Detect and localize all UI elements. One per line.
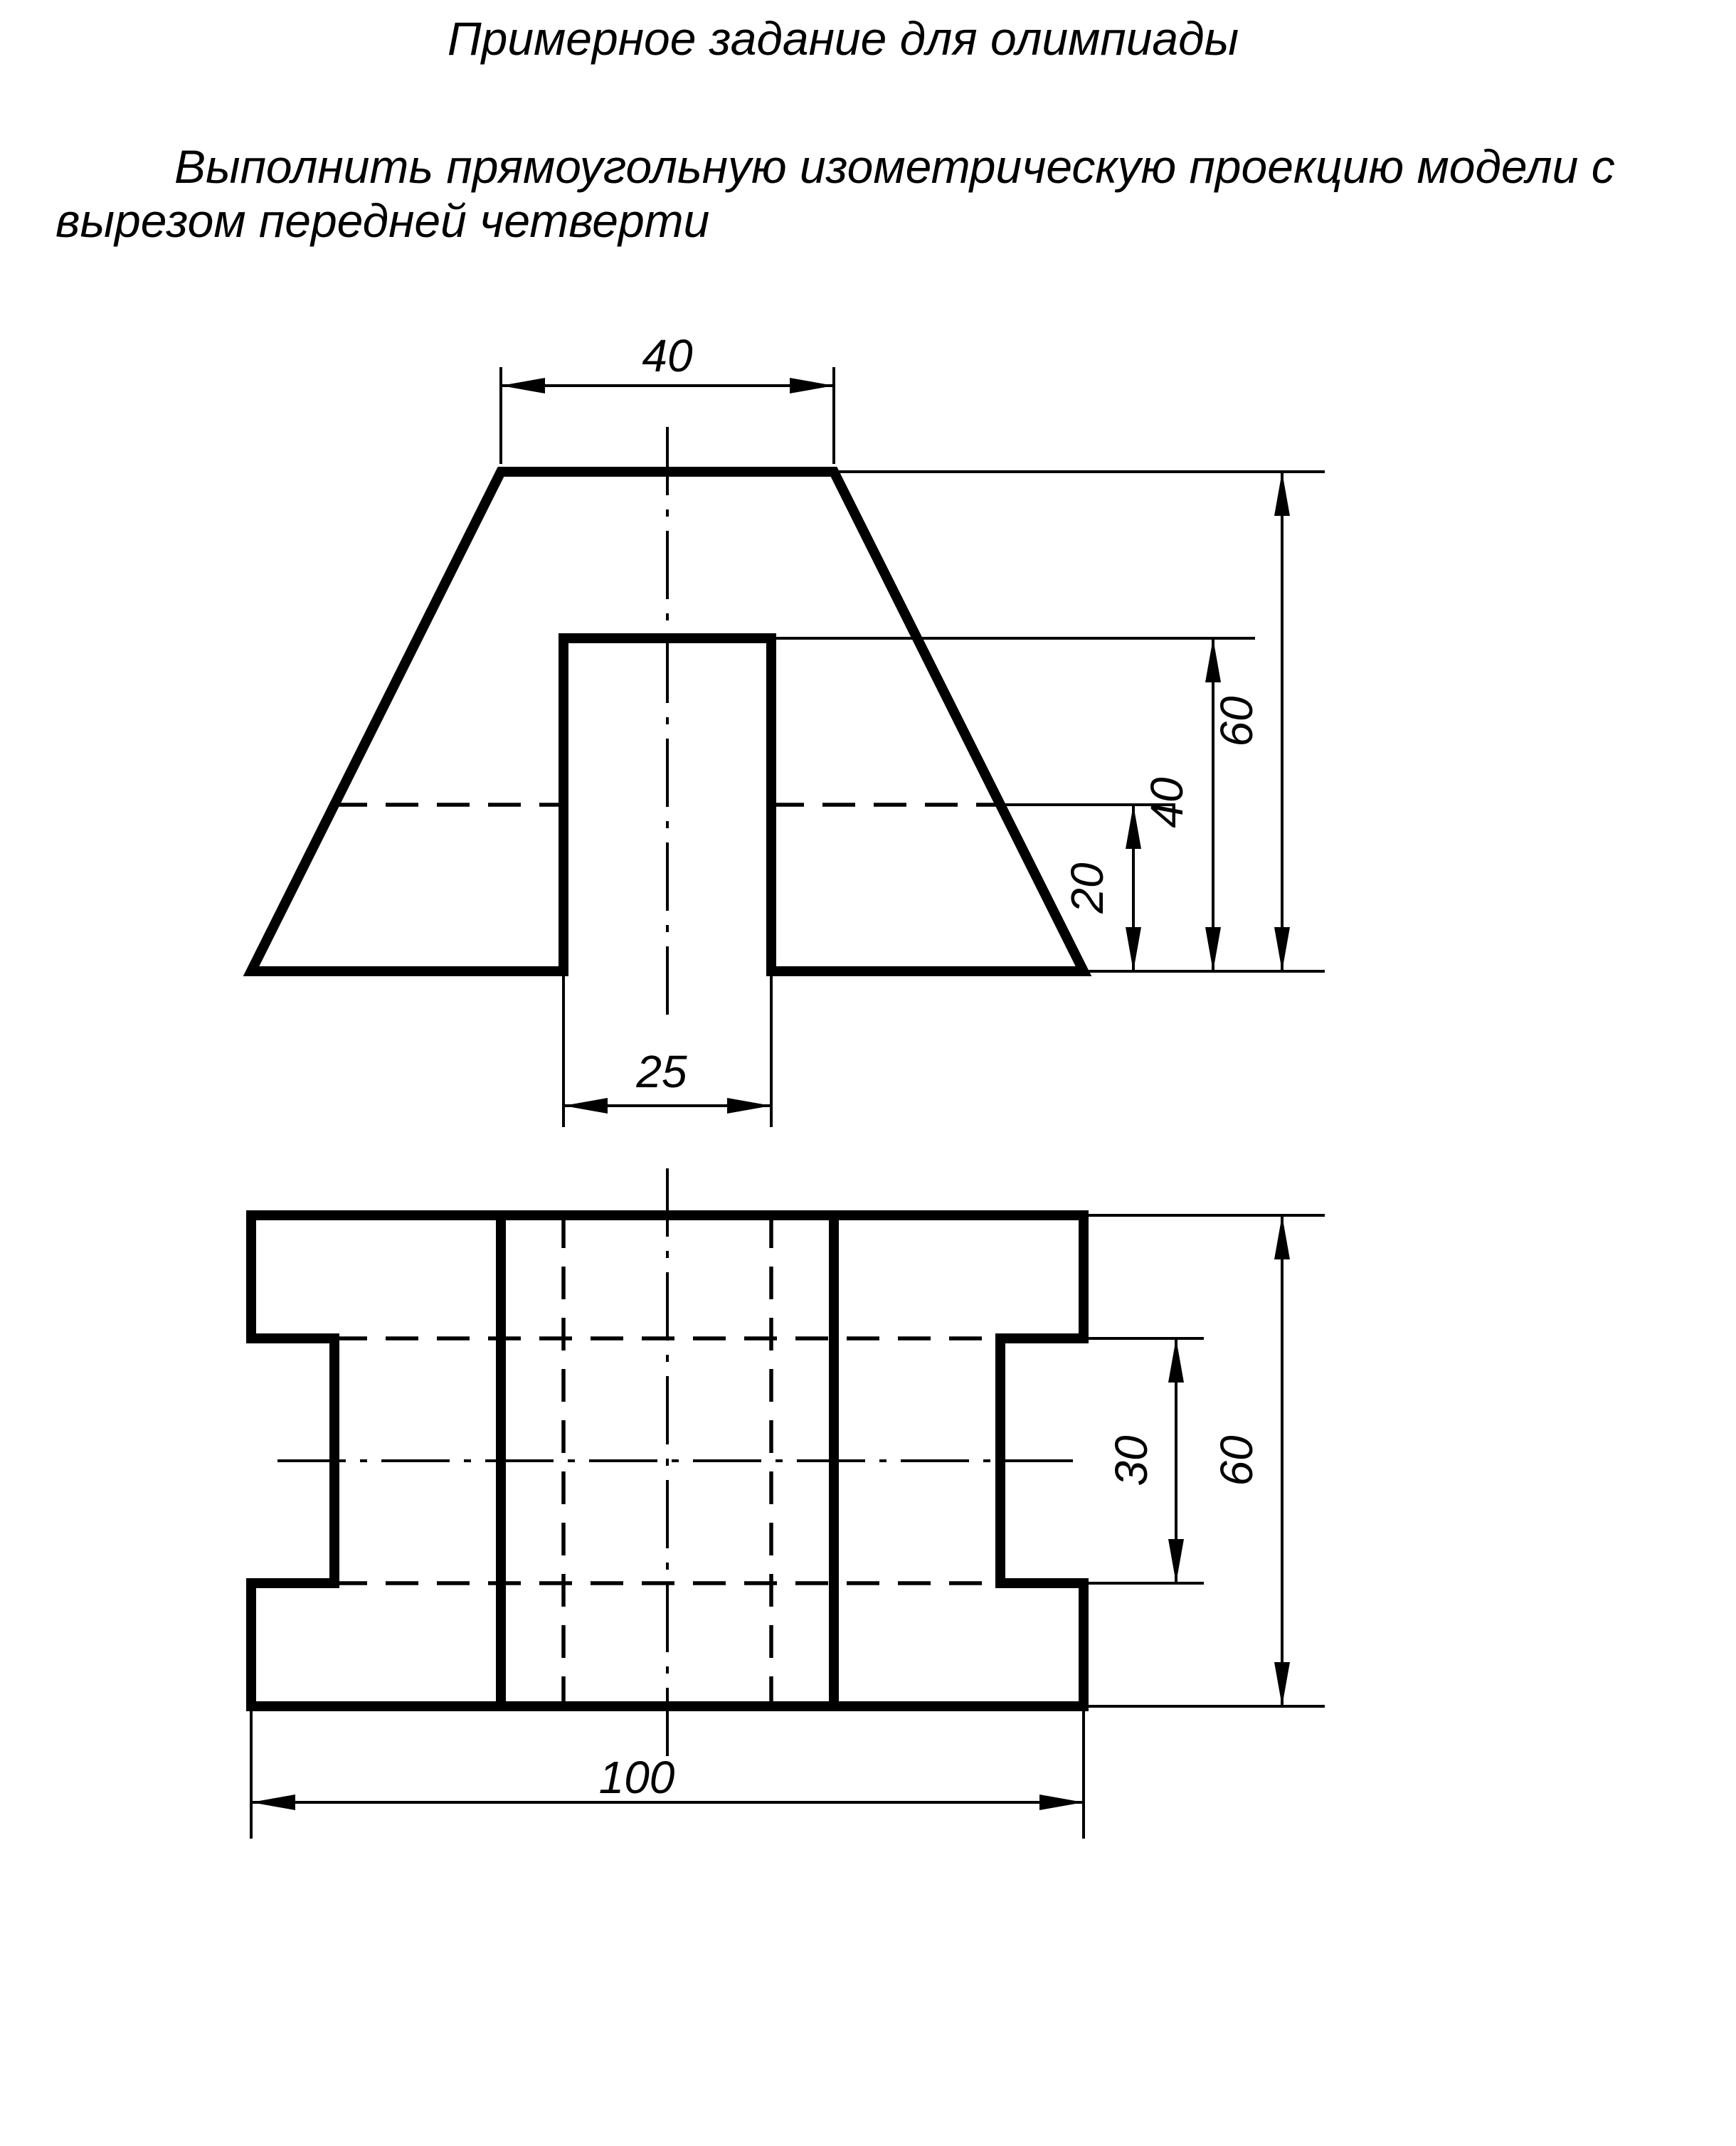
dim-60-front-label: 60 bbox=[1211, 696, 1262, 747]
dim-40-right-arrow-bottom bbox=[1205, 927, 1221, 971]
dim-40-right-arrow-top bbox=[1205, 638, 1221, 682]
dim-25-arrow-right bbox=[727, 1098, 771, 1114]
dim-30-arrow-bottom bbox=[1168, 1539, 1184, 1583]
dim-60-plan-label: 60 bbox=[1211, 1435, 1262, 1486]
dim-25-arrow-left bbox=[563, 1098, 608, 1114]
dim-40-right-label: 40 bbox=[1141, 777, 1192, 828]
dim-20-arrow-bottom bbox=[1126, 927, 1141, 971]
dim-40-top-label: 40 bbox=[642, 330, 693, 381]
dim-60-front-arrow-bottom bbox=[1274, 927, 1290, 971]
dim-60-front-arrow-top bbox=[1274, 472, 1290, 516]
dim-40-top-arrow-right bbox=[790, 378, 834, 393]
dim-100-label: 100 bbox=[599, 1752, 675, 1803]
dim-100-arrow-right bbox=[1039, 1794, 1084, 1810]
technical-drawing: 40252040603060100 bbox=[0, 0, 1736, 2146]
dim-60-plan-arrow-top bbox=[1274, 1215, 1290, 1259]
dim-60-plan-arrow-bottom bbox=[1274, 1662, 1290, 1706]
dim-100-arrow-left bbox=[251, 1794, 295, 1810]
dim-20-arrow-top bbox=[1126, 805, 1141, 849]
dim-30-arrow-top bbox=[1168, 1338, 1184, 1383]
dim-30-label: 30 bbox=[1106, 1435, 1157, 1486]
dim-20-label: 20 bbox=[1062, 862, 1113, 914]
dim-40-top-arrow-left bbox=[501, 378, 545, 393]
dim-25-label: 25 bbox=[635, 1046, 687, 1097]
page: Примерное задание для олимпиады Выполнит… bbox=[0, 0, 1736, 2146]
